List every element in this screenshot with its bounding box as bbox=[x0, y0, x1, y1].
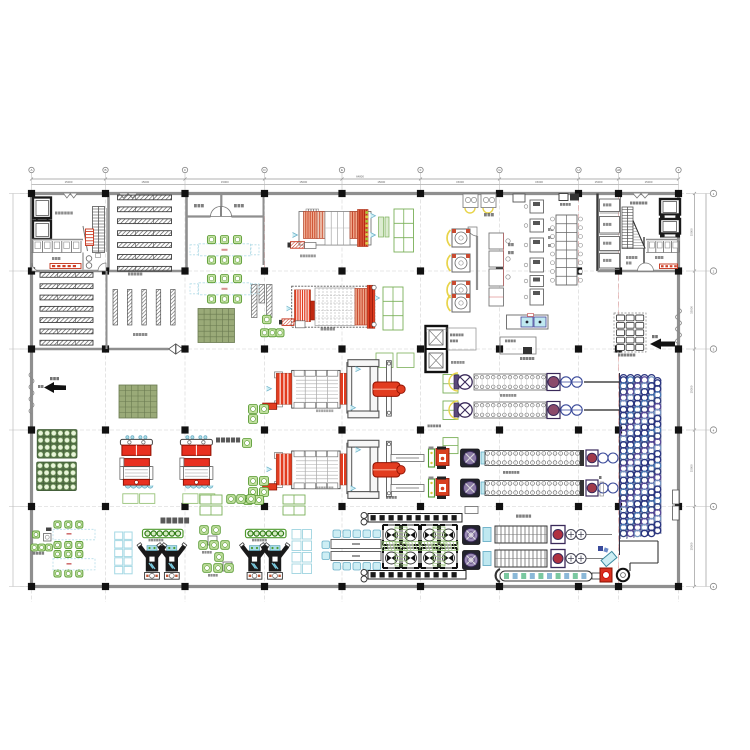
svg-text:A: A bbox=[30, 168, 32, 172]
svg-text:15000: 15000 bbox=[690, 306, 694, 314]
svg-text:15000: 15000 bbox=[595, 180, 603, 184]
svg-text:15000: 15000 bbox=[645, 180, 653, 184]
svg-text:15000: 15000 bbox=[690, 464, 694, 472]
svg-text:15000: 15000 bbox=[690, 542, 694, 550]
svg-text:B: B bbox=[104, 168, 106, 172]
svg-text:E: E bbox=[341, 168, 343, 172]
svg-text:F: F bbox=[420, 168, 422, 172]
svg-text:Hb: Hb bbox=[617, 168, 621, 172]
svg-text:H: H bbox=[577, 168, 579, 172]
svg-text:15000: 15000 bbox=[65, 180, 73, 184]
svg-text:15000: 15000 bbox=[221, 180, 229, 184]
svg-text:15000: 15000 bbox=[690, 228, 694, 236]
svg-text:64800: 64800 bbox=[356, 175, 364, 179]
svg-text:15000: 15000 bbox=[299, 180, 307, 184]
svg-text:15000: 15000 bbox=[456, 180, 464, 184]
svg-text:15000: 15000 bbox=[690, 385, 694, 393]
svg-text:15000: 15000 bbox=[535, 180, 543, 184]
svg-text:15000: 15000 bbox=[141, 180, 149, 184]
svg-text:15000: 15000 bbox=[377, 180, 385, 184]
